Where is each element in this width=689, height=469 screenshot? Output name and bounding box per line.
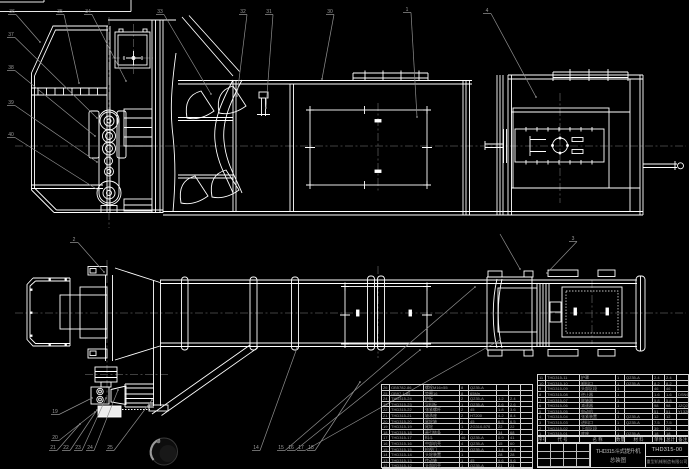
balloon-number: 17 <box>298 445 304 451</box>
balloon-number: 16 <box>288 445 294 451</box>
balloon-number: 4 <box>486 8 489 14</box>
bom-table-left: 26GB5782-86螺栓M16×558Q235-A25GB97.1-85垫圈1… <box>381 384 533 468</box>
bom-cell: 头部机壳 <box>424 463 460 469</box>
bom-cell: THD315-12 <box>390 463 424 469</box>
balloon-number: 21 <box>50 445 56 451</box>
balloon-number: 15 <box>278 445 284 451</box>
balloon-number: 20 <box>52 435 58 441</box>
balloon-number: 25 <box>107 445 113 451</box>
balloon-number: 22 <box>63 445 69 451</box>
bom-header-row: 序号代 号名 称数量材 料单件总计备注 <box>537 436 689 443</box>
bom-row: 12THD315-12头部机壳1Q235-A2121 <box>382 463 532 469</box>
balloon-number: 32 <box>240 9 246 15</box>
watermark-logo <box>151 438 178 465</box>
revision-grid <box>538 444 591 467</box>
balloon-number: 36 <box>9 9 15 15</box>
balloon-number: 1 <box>406 7 409 13</box>
bom-cell: 1 <box>460 463 469 469</box>
bom-cell: 21 <box>509 463 521 469</box>
balloon-number: 39 <box>8 100 14 106</box>
balloon-number: 24 <box>87 445 93 451</box>
balloon-number: 33 <box>157 9 163 15</box>
title-cell: THD315斗式提升机 总装图 <box>591 444 646 467</box>
drawing-number: THD315-00 <box>646 444 688 457</box>
balloon-number: 18 <box>308 445 314 451</box>
balloon-number: 35 <box>57 9 63 15</box>
balloon-number: 2 <box>73 237 76 243</box>
bom-cell: Q235-A <box>469 463 497 469</box>
balloon-number: 40 <box>8 132 14 138</box>
balloon-number: 14 <box>253 445 259 451</box>
balloon-number: 30 <box>327 9 333 15</box>
bom-cell: 12 <box>382 463 390 469</box>
balloon-number: 34 <box>85 9 91 15</box>
balloon-number: 19 <box>52 409 58 415</box>
company-name: 重型机械制造有限公司 <box>646 457 688 467</box>
drawing-number-cell: THD315-00 重型机械制造有限公司 <box>646 444 688 467</box>
cad-viewport: { "drawing": { "product_title": "THD315斗… <box>0 0 689 468</box>
balloon-number: 38 <box>8 65 14 71</box>
balloon-number: 37 <box>8 32 14 38</box>
balloon-number: 3 <box>572 236 575 242</box>
drawing-type: 总装图 <box>610 456 626 464</box>
bom-cell <box>521 463 533 469</box>
balloon-number: 31 <box>266 9 272 15</box>
bom-table-right: 11THD315-11护罩1Q235-A2.42.410THD315-10卸料口… <box>537 374 689 436</box>
title-block: THD315斗式提升机 总装图 THD315-00 重型机械制造有限公司 <box>537 443 689 468</box>
balloon-number: 23 <box>75 445 81 451</box>
bom-cell: 21 <box>497 463 509 469</box>
product-title: THD315斗式提升机 <box>596 447 640 455</box>
